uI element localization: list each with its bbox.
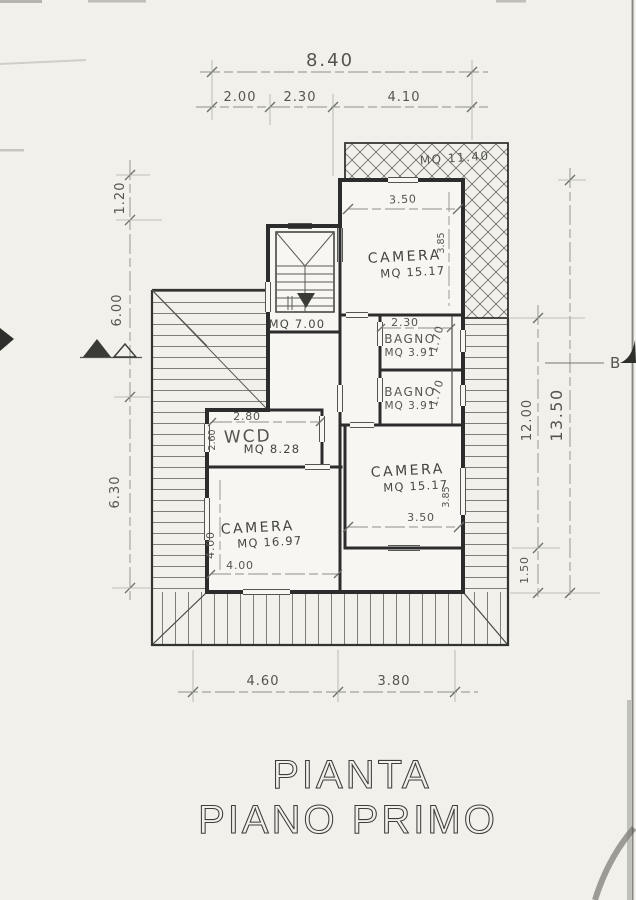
dim-right-balcony: 1.50 bbox=[518, 556, 531, 584]
dim-bottom-seg-2: 3.80 bbox=[378, 674, 411, 689]
dim-wcd-w: 2.80 bbox=[233, 410, 261, 423]
label-bagno-upper-name: BAGNO bbox=[384, 332, 435, 346]
title-line-1: PIANTA bbox=[272, 753, 432, 797]
section-a-filled-triangle-icon bbox=[83, 339, 111, 357]
dim-bagno-upper-w: 2.30 bbox=[391, 316, 419, 329]
label-bagno-lower-area: MQ 3.91 bbox=[384, 400, 435, 412]
lower-right-terrace-band bbox=[345, 548, 463, 592]
dim-top-seg-3: 4.10 bbox=[388, 90, 421, 105]
label-bagno-lower-name: BAGNO bbox=[384, 385, 435, 399]
dim-left-seg-2: 6.00 bbox=[110, 294, 125, 327]
section-a-outline-triangle-icon bbox=[114, 344, 136, 357]
section-b-label: B bbox=[610, 354, 620, 372]
dim-right-total: 13.50 bbox=[547, 388, 566, 441]
dim-right-depth: 12.00 bbox=[520, 399, 535, 441]
dim-wcd-d: 2.60 bbox=[207, 429, 218, 450]
dim-camera-top-w: 3.50 bbox=[389, 193, 417, 207]
dim-bottom-seg-1: 4.60 bbox=[247, 674, 280, 689]
dim-top-seg-2: 2.30 bbox=[284, 90, 317, 105]
dim-top-seg-1: 2.00 bbox=[224, 90, 257, 105]
dim-camera-right-w: 3.50 bbox=[407, 511, 435, 524]
title-line-2: PIANO PRIMO bbox=[198, 798, 498, 842]
dim-camera-left-w: 4.00 bbox=[226, 559, 254, 572]
section-marker-b: B bbox=[545, 340, 636, 372]
dim-left-seg-1: 1.20 bbox=[113, 182, 128, 215]
label-bagno-upper-area: MQ 3.91 bbox=[384, 347, 435, 359]
drawing-title: PIANTA PIANO PRIMO bbox=[198, 753, 498, 842]
floor-plan-sheet: 8.40 2.00 2.30 4.10 4.60 3.80 1.20 6.00 … bbox=[0, 0, 636, 900]
dim-left-seg-3: 6.30 bbox=[108, 476, 123, 509]
floor-plan-drawing: 8.40 2.00 2.30 4.10 4.60 3.80 1.20 6.00 … bbox=[0, 0, 636, 900]
label-stairwell-area: MQ 7.00 bbox=[269, 317, 326, 331]
section-marker-a bbox=[80, 339, 142, 358]
label-wcd-area: MQ 8.28 bbox=[244, 442, 301, 456]
dim-top-total: 8.40 bbox=[306, 50, 354, 71]
dim-camera-left-d: 4.00 bbox=[204, 531, 217, 559]
section-b-pennant-icon bbox=[620, 340, 636, 363]
